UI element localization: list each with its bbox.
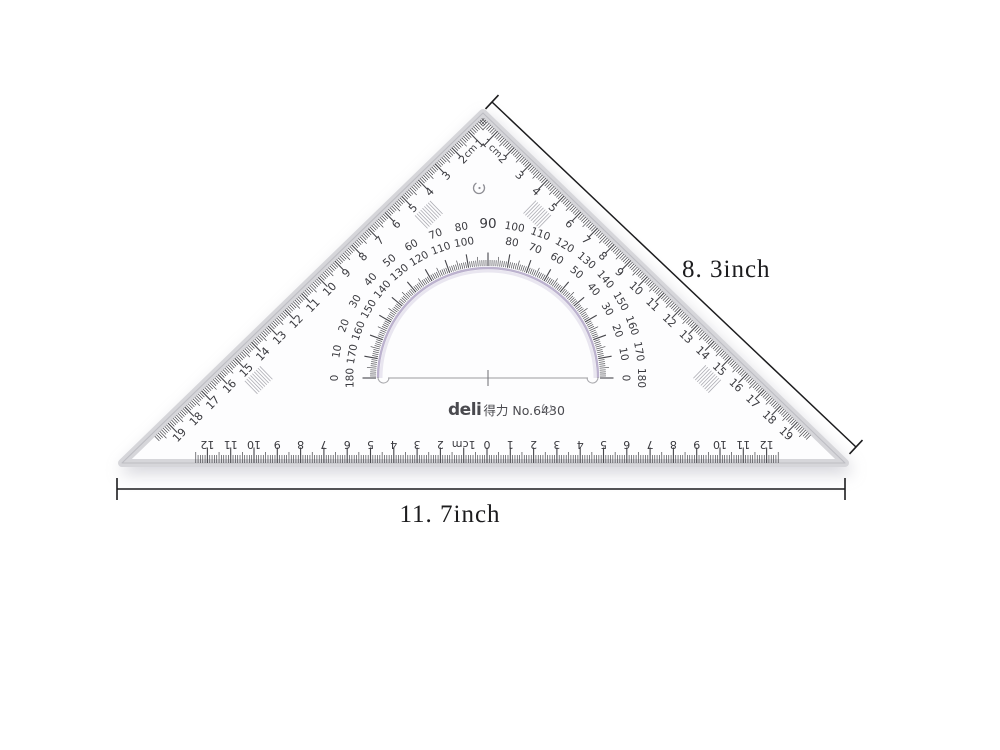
base-dimension-label: 11. 7inch <box>399 501 500 528</box>
bottom-cm-label: 12 <box>760 438 774 451</box>
bottom-cm-label: 11 <box>224 438 238 451</box>
protractor-outer-label: 10 <box>330 344 344 359</box>
brand-model-text: No.6430 <box>512 403 565 418</box>
bottom-cm-label: 12 <box>200 438 214 451</box>
bottom-cm-label: 2 <box>530 438 537 451</box>
bottom-cm-label: 10 <box>713 438 727 451</box>
bottom-cm-label: 4 <box>577 438 584 451</box>
bottom-cm-label: 1cm <box>452 438 476 451</box>
bottom-cm-label: 6 <box>344 438 351 451</box>
bottom-cm-label: 5 <box>367 438 374 451</box>
bottom-cm-label: 6 <box>623 438 630 451</box>
brand-logo-text: deli <box>448 400 481 420</box>
protractor-outer-label: 180 <box>635 368 647 388</box>
hypotenuse-dimension-label: 8. 3inch <box>682 256 771 283</box>
bottom-cm-label: 3 <box>553 438 560 451</box>
dimension-base: 11. 7inch <box>117 478 845 528</box>
set-square-scene: 12345678910111213141516171819cm 12345678… <box>0 0 1000 750</box>
bottom-cm-label: 10 <box>247 438 261 451</box>
bottom-cm-label: 4 <box>390 438 397 451</box>
bottom-cm-label: 1 <box>507 438 514 451</box>
protractor-outer-label: 0 <box>329 375 341 382</box>
bottom-cm-label: 9 <box>693 438 700 451</box>
brand-chinese-text: 得力 <box>483 403 508 418</box>
protractor-inner-label: 80 <box>504 236 519 250</box>
bottom-cm-label: 7 <box>320 438 327 451</box>
bottom-cm-label: 9 <box>274 438 281 451</box>
bottom-cm-label: 7 <box>647 438 654 451</box>
bottom-cm-label: 3 <box>414 438 421 451</box>
protractor-inner-label: 10 <box>616 346 630 361</box>
protractor-inner-label: 180 <box>345 368 357 388</box>
bottom-cm-label: 8 <box>670 438 677 451</box>
protractor-outer-label: 90 <box>479 216 496 232</box>
bottom-cm-label: 5 <box>600 438 607 451</box>
svg-text:deli得力No.6430: deli得力No.6430 <box>448 400 565 420</box>
bottom-cm-label: 8 <box>297 438 304 451</box>
bottom-cm-label: 11 <box>736 438 750 451</box>
protractor-outer-label: 80 <box>454 220 469 234</box>
product-photo: 12345678910111213141516171819cm 12345678… <box>0 0 1000 750</box>
bottom-cm-label: 2 <box>437 438 444 451</box>
protractor-inner-label: 0 <box>620 375 632 382</box>
bottom-cm-label: 0 <box>484 438 491 451</box>
